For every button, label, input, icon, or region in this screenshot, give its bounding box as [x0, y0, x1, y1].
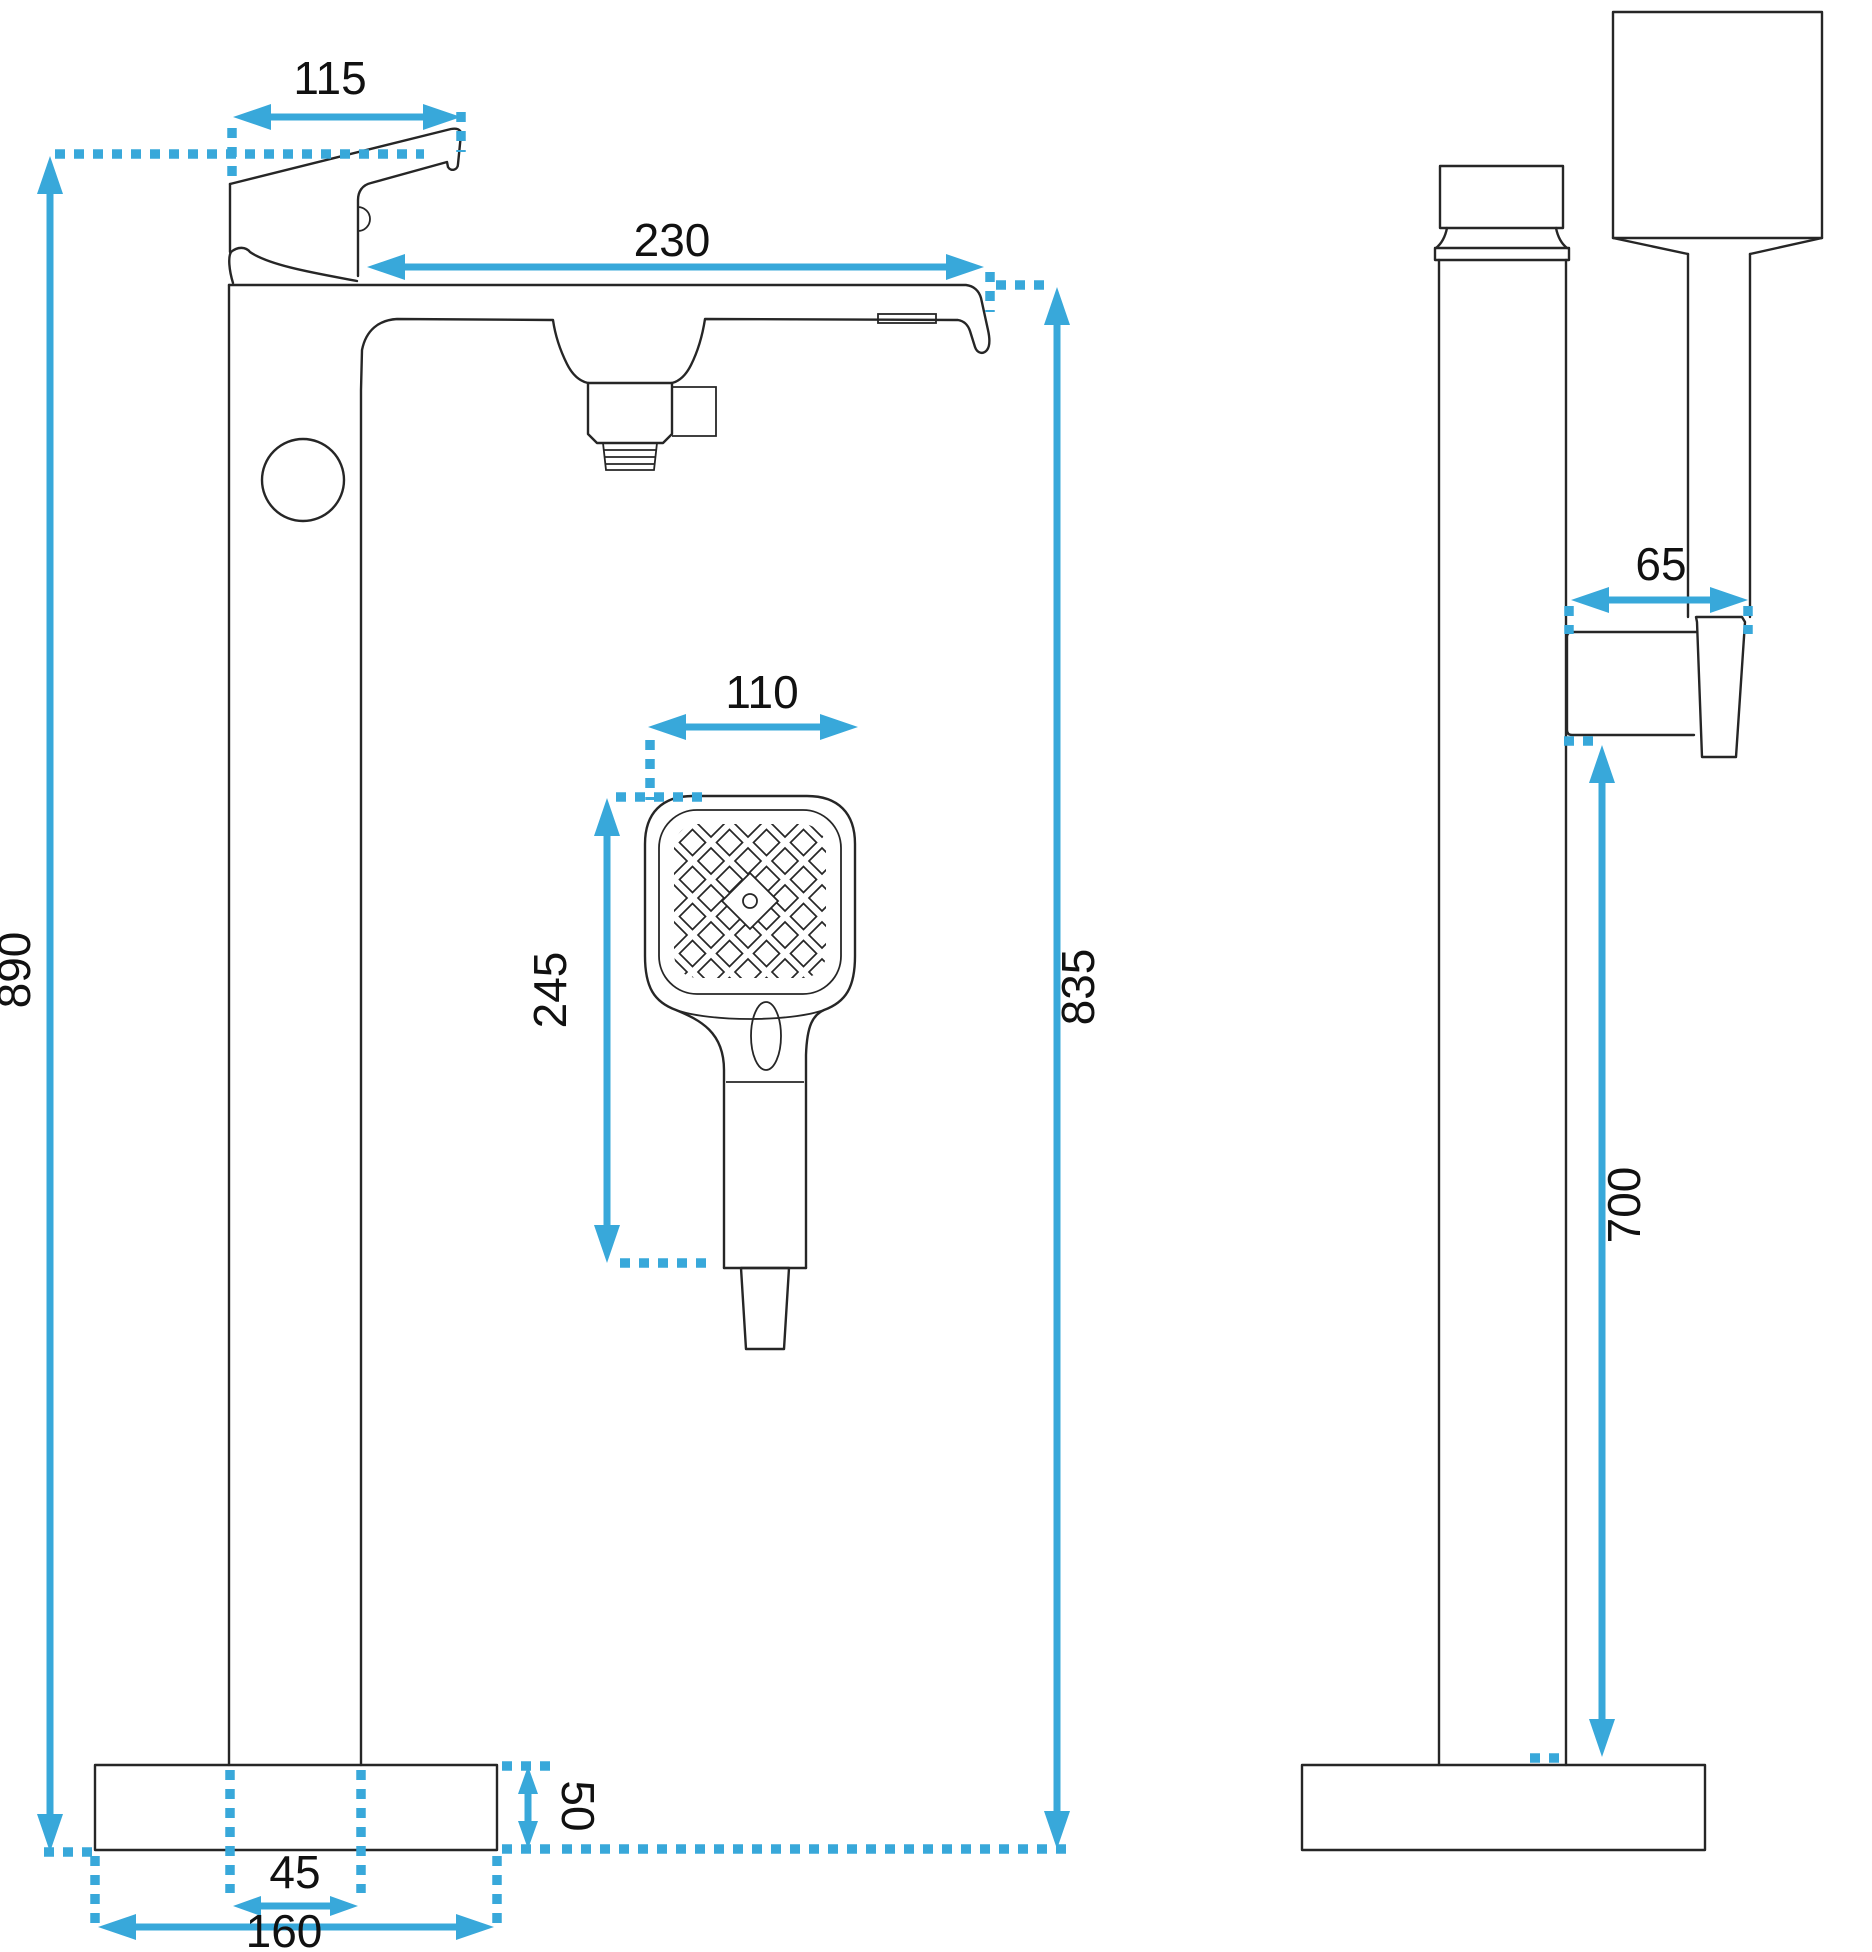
side-spout-box [1613, 12, 1822, 238]
dim-230-label: 230 [634, 214, 711, 266]
dim-700-label: 700 [1598, 1167, 1650, 1244]
front-hand-shower [645, 796, 855, 1349]
dim-160-label: 160 [246, 1905, 323, 1952]
hose-side-port [672, 387, 716, 436]
dim-110-handset-width: 110 [616, 666, 858, 800]
dim-65-label: 65 [1635, 538, 1686, 590]
side-spout [1613, 12, 1822, 617]
dim-890-label: 890 [0, 932, 40, 1009]
spout-aerator-slot [878, 314, 936, 323]
side-hand-shower [1696, 617, 1745, 757]
dim-110-label: 110 [725, 666, 798, 718]
side-column [1435, 166, 1569, 1765]
dim-890-total-height: 890 [0, 156, 92, 1852]
dim-835-label: 835 [1052, 949, 1104, 1026]
dim-230-spout-reach: 230 [367, 214, 1048, 312]
dim-245-label: 245 [524, 952, 576, 1029]
dim-45-column-width: 45 [230, 1770, 361, 1916]
drawing-canvas: 115 230 890 835 110 245 [0, 0, 1872, 1952]
shower-hose-cone [741, 1268, 789, 1349]
side-view [1302, 12, 1822, 1850]
dim-65-holder-depth: 65 [1569, 538, 1748, 634]
side-handle-cap [1440, 166, 1563, 228]
dim-50-label: 50 [552, 1780, 604, 1831]
shower-mode-button [751, 1002, 781, 1070]
front-base-plate [95, 1765, 497, 1850]
dim-50-base-height: 50 [502, 1766, 604, 1849]
overflow-knob [262, 439, 344, 521]
side-base-plate [1302, 1765, 1705, 1850]
dim-700-holder-height: 700 [1530, 741, 1650, 1758]
front-hose-outlet [588, 383, 716, 470]
dim-45-label: 45 [269, 1846, 320, 1898]
dim-115-label: 115 [293, 52, 366, 104]
dim-835-spout-height: 835 [562, 287, 1104, 1849]
faucet-technical-drawing: 115 230 890 835 110 245 [0, 0, 1872, 1952]
side-shower-holder [1567, 617, 1745, 757]
dim-115-handle-length: 115 [55, 52, 461, 176]
